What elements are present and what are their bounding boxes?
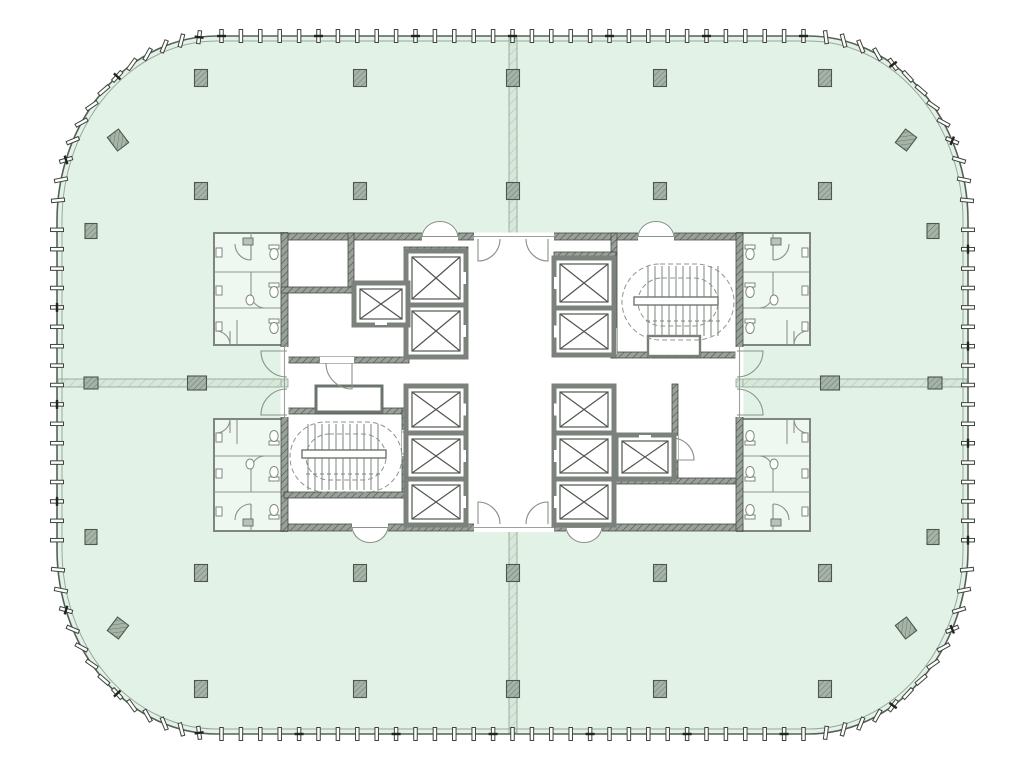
mullion-tick — [472, 728, 476, 741]
counter-icon — [771, 238, 781, 245]
toilet-icon — [246, 295, 254, 305]
structural-column — [354, 70, 367, 87]
mullion-tick — [550, 30, 554, 43]
structural-column — [927, 224, 939, 239]
mullion-tick — [51, 461, 64, 465]
structural-column — [188, 376, 207, 390]
mullion-tick — [51, 422, 64, 426]
vestibule-room — [316, 386, 382, 412]
elevator-door — [639, 435, 651, 438]
structural-column — [354, 565, 367, 582]
mullion-tick — [962, 519, 975, 523]
mullion-tick — [356, 728, 360, 741]
structural-column — [654, 183, 667, 200]
structural-column — [819, 70, 832, 87]
mullion-tick — [414, 728, 418, 741]
structural-column — [654, 681, 667, 698]
mullion-accent-mark — [314, 35, 323, 37]
sink-icon — [216, 286, 222, 295]
mullion-tick — [530, 728, 534, 741]
structural-column — [195, 681, 208, 698]
mullion-tick — [491, 30, 495, 43]
mullion-tick — [530, 30, 534, 43]
sink-icon — [802, 507, 808, 516]
toilet-icon — [746, 287, 754, 298]
structural-column — [85, 530, 97, 545]
floor-plan-drawing — [0, 0, 1024, 768]
mullion-tick — [962, 306, 975, 310]
sink-icon — [216, 469, 222, 478]
mullion-tick — [375, 728, 379, 741]
mullion-tick — [960, 198, 973, 203]
sink-icon — [216, 248, 222, 257]
mullion-accent-mark — [56, 303, 58, 312]
mullion-accent-mark — [217, 35, 226, 37]
mullion-tick — [962, 383, 975, 387]
toilet-icon — [270, 249, 278, 260]
stair-landing — [634, 297, 718, 305]
mullion-tick — [259, 728, 263, 741]
duct-room — [648, 336, 700, 356]
elevator-door — [463, 404, 466, 416]
structural-column — [927, 530, 939, 545]
mullion-tick — [51, 538, 64, 542]
mullion-tick — [433, 30, 437, 43]
mullion-accent-mark — [586, 733, 595, 735]
core-wall — [284, 492, 408, 498]
floor-plan-page — [0, 0, 1024, 768]
mullion-accent-mark — [411, 35, 420, 37]
toilet-icon — [270, 287, 278, 298]
toilet-icon — [770, 295, 778, 305]
mullion-tick — [962, 228, 975, 232]
mullion-tick — [685, 30, 689, 43]
mullion-tick — [278, 30, 282, 43]
restroom-wing-top-right — [737, 233, 810, 345]
toilet-icon — [746, 467, 754, 478]
mullion-tick — [962, 403, 975, 407]
mullion-tick — [647, 728, 651, 741]
mullion-tick — [453, 728, 457, 741]
elevator-door — [554, 496, 557, 508]
structural-column — [819, 183, 832, 200]
structural-column — [654, 70, 667, 87]
mullion-accent-mark — [967, 439, 969, 448]
toilet-icon — [270, 505, 278, 516]
mullion-accent-mark — [967, 245, 969, 254]
toilet-icon — [270, 467, 278, 478]
mullion-tick — [724, 30, 728, 43]
elevator-door — [463, 325, 466, 337]
mullion-tick — [802, 728, 806, 741]
mullion-tick — [962, 267, 975, 271]
mullion-tick — [511, 728, 515, 741]
mullion-tick — [627, 30, 631, 43]
sink-icon — [802, 433, 808, 442]
mullion-tick — [666, 728, 670, 741]
mullion-tick — [375, 30, 379, 43]
structural-column — [354, 183, 367, 200]
sink-icon — [802, 248, 808, 257]
wall-opening — [320, 357, 354, 363]
mullion-tick — [960, 567, 973, 572]
structural-column — [928, 377, 942, 389]
structural-column — [654, 565, 667, 582]
mullion-accent-mark — [967, 536, 969, 545]
mullion-tick — [782, 30, 786, 43]
sink-icon — [802, 322, 808, 331]
mullion-tick — [220, 728, 224, 741]
toilet-icon — [746, 249, 754, 260]
mullion-tick — [51, 228, 64, 232]
structural-column — [819, 681, 832, 698]
sink-icon — [216, 507, 222, 516]
mullion-tick — [278, 728, 282, 741]
mullion-tick — [51, 441, 64, 445]
core-wall — [281, 287, 354, 293]
structural-column — [195, 70, 208, 87]
toilet-icon — [270, 431, 278, 442]
elevator-door — [463, 272, 466, 284]
mullion-tick — [569, 728, 573, 741]
mullion-tick — [51, 267, 64, 271]
mullion-tick — [962, 286, 975, 290]
mullion-tick — [51, 567, 64, 572]
elevator-door — [554, 326, 557, 338]
mullion-tick — [336, 728, 340, 741]
mullion-tick — [356, 30, 360, 43]
structural-column — [507, 565, 520, 582]
restroom-wing-bottom-left — [214, 419, 287, 531]
demising-wall — [509, 531, 517, 733]
mullion-tick — [51, 344, 64, 348]
toilet-icon — [746, 431, 754, 442]
elevator-door — [463, 496, 466, 508]
elevator-door — [554, 277, 557, 289]
restroom-wing-bottom-right — [737, 419, 810, 531]
structural-column — [507, 183, 520, 200]
mullion-accent-mark — [508, 35, 517, 37]
mullion-tick — [51, 198, 64, 203]
mullion-tick — [472, 30, 476, 43]
mullion-tick — [51, 247, 64, 251]
mullion-accent-mark — [56, 497, 58, 506]
stair-landing — [302, 450, 386, 458]
mullion-tick — [666, 30, 670, 43]
mullion-tick — [705, 728, 709, 741]
mullion-tick — [394, 30, 398, 43]
mullion-tick — [51, 383, 64, 387]
mullion-tick — [51, 364, 64, 368]
structural-column — [84, 377, 98, 389]
elevator-door — [554, 404, 557, 416]
mullion-tick — [608, 728, 612, 741]
structural-column — [85, 224, 97, 239]
mullion-tick — [744, 30, 748, 43]
elevator-door — [375, 322, 387, 325]
service-core — [261, 221, 763, 542]
mullion-tick — [259, 30, 263, 43]
mullion-tick — [297, 30, 301, 43]
mullion-tick — [51, 286, 64, 290]
mullion-tick — [453, 30, 457, 43]
sink-icon — [802, 286, 808, 295]
mullion-tick — [51, 519, 64, 523]
counter-icon — [243, 519, 253, 526]
structural-column — [507, 681, 520, 698]
mullion-tick — [627, 728, 631, 741]
elevator-door — [554, 450, 557, 462]
mullion-tick — [647, 30, 651, 43]
toilet-icon — [270, 323, 278, 334]
mullion-tick — [763, 30, 767, 43]
mullion-tick — [962, 480, 975, 484]
toilet-icon — [746, 323, 754, 334]
mullion-accent-mark — [489, 733, 498, 735]
sink-icon — [802, 469, 808, 478]
structural-column — [195, 565, 208, 582]
mullion-tick — [239, 728, 243, 741]
structural-column — [195, 183, 208, 200]
mullion-tick — [962, 325, 975, 329]
mullion-accent-mark — [780, 733, 789, 735]
mullion-tick — [569, 30, 573, 43]
structural-column — [821, 376, 840, 390]
elevator-door — [463, 450, 466, 462]
counter-icon — [771, 519, 781, 526]
mullion-tick — [962, 500, 975, 504]
mullion-tick — [962, 364, 975, 368]
mullion-tick — [433, 728, 437, 741]
mullion-tick — [744, 728, 748, 741]
mullion-tick — [51, 480, 64, 484]
mullion-accent-mark — [702, 35, 711, 37]
mullion-tick — [962, 422, 975, 426]
mullion-tick — [962, 461, 975, 465]
mullion-tick — [317, 728, 321, 741]
structural-column — [819, 565, 832, 582]
mullion-tick — [51, 325, 64, 329]
mullion-accent-mark — [295, 733, 304, 735]
mullion-accent-mark — [392, 733, 401, 735]
mullion-accent-mark — [605, 35, 614, 37]
structural-column — [354, 681, 367, 698]
mullion-tick — [550, 728, 554, 741]
counter-icon — [243, 238, 253, 245]
mullion-tick — [239, 30, 243, 43]
sink-icon — [216, 433, 222, 442]
mullion-accent-mark — [799, 35, 808, 37]
structural-column — [507, 70, 520, 87]
toilet-icon — [770, 459, 778, 469]
mullion-accent-mark — [683, 733, 692, 735]
mullion-tick — [336, 30, 340, 43]
toilet-icon — [246, 459, 254, 469]
toilet-icon — [746, 505, 754, 516]
mullion-tick — [588, 30, 592, 43]
mullion-accent-mark — [56, 400, 58, 409]
mullion-tick — [724, 728, 728, 741]
sink-icon — [216, 322, 222, 331]
mullion-tick — [763, 728, 767, 741]
mullion-accent-mark — [967, 342, 969, 351]
demising-wall — [509, 38, 517, 234]
restroom-wing-top-left — [214, 233, 287, 345]
